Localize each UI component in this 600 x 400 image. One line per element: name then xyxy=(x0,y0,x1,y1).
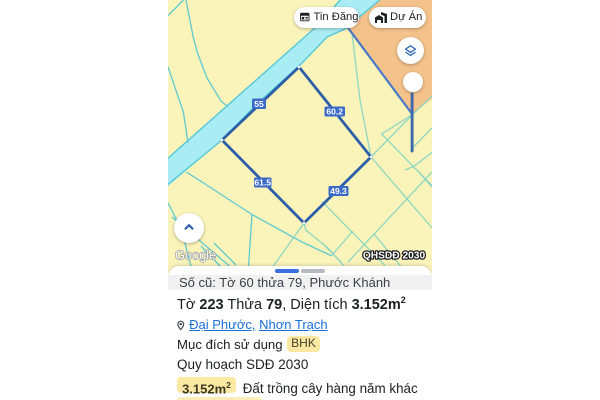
svg-text:55: 55 xyxy=(254,99,264,109)
svg-text:QHSDĐ 2030: QHSDĐ 2030 xyxy=(363,250,426,261)
svg-text:Google: Google xyxy=(175,248,216,263)
svg-text:61.5: 61.5 xyxy=(254,178,271,188)
svg-text:49.3: 49.3 xyxy=(330,186,347,196)
svg-text:60.2: 60.2 xyxy=(326,107,343,117)
